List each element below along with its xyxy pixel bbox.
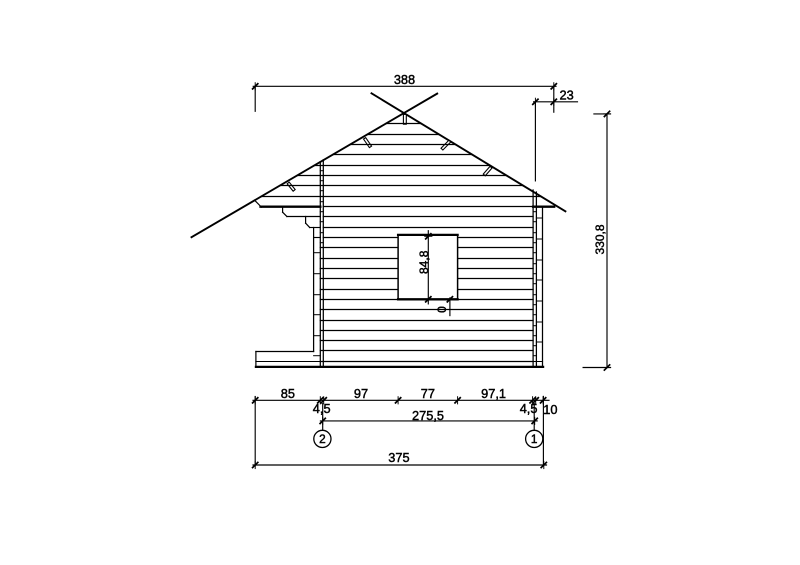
svg-text:2: 2 — [319, 432, 326, 446]
svg-text:275,5: 275,5 — [412, 408, 444, 423]
svg-text:84,8: 84,8 — [417, 250, 431, 274]
svg-text:375: 375 — [388, 450, 409, 465]
svg-text:85: 85 — [281, 386, 295, 401]
svg-text:97: 97 — [354, 386, 368, 401]
svg-text:97,1: 97,1 — [481, 386, 506, 401]
svg-text:330,8: 330,8 — [593, 224, 607, 254]
svg-text:1: 1 — [531, 432, 538, 446]
svg-text:10: 10 — [543, 402, 557, 417]
svg-text:4,5: 4,5 — [520, 401, 538, 416]
svg-text:77: 77 — [421, 386, 435, 401]
svg-text:23: 23 — [559, 88, 573, 103]
svg-text:0: 0 — [435, 306, 449, 313]
svg-text:388: 388 — [394, 72, 415, 87]
svg-text:4,5: 4,5 — [313, 401, 331, 416]
